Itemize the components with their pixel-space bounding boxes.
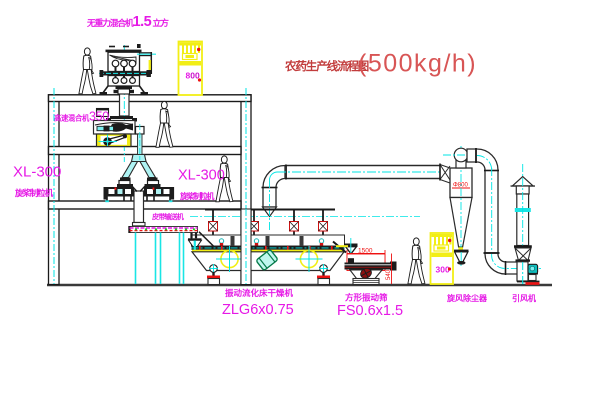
svg-text:800: 800 xyxy=(186,71,200,81)
svg-text:引风机: 引风机 xyxy=(512,293,536,303)
svg-text:无重力混合机1.5 立方: 无重力混合机1.5 立方 xyxy=(86,14,169,30)
svg-text:540: 540 xyxy=(386,269,392,280)
svg-text:旋风除尘器: 旋风除尘器 xyxy=(446,293,488,303)
svg-text:ZLG6x0.75: ZLG6x0.75 xyxy=(222,302,294,318)
svg-text:XL-300: XL-300 xyxy=(13,164,61,181)
svg-text:方形振动筛: 方形振动筛 xyxy=(345,293,388,303)
svg-text:旋桨制粒机: 旋桨制粒机 xyxy=(14,187,54,198)
svg-text:300: 300 xyxy=(436,265,450,275)
svg-text:1500: 1500 xyxy=(358,248,373,255)
svg-text:高速混合机350: 高速混合机350 xyxy=(54,110,109,124)
svg-text:XL-300: XL-300 xyxy=(178,168,225,184)
svg-text:皮带输送机: 皮带输送机 xyxy=(151,212,184,221)
svg-text:振动流化床干燥机: 振动流化床干燥机 xyxy=(225,288,294,298)
svg-text:农药生产线流程图: 农药生产线流程图 xyxy=(284,59,369,73)
svg-text:旋桨制粒机: 旋桨制粒机 xyxy=(179,191,214,201)
svg-text:FS0.6x1.5: FS0.6x1.5 xyxy=(337,303,403,319)
svg-text:(500kg/h): (500kg/h) xyxy=(358,50,477,78)
